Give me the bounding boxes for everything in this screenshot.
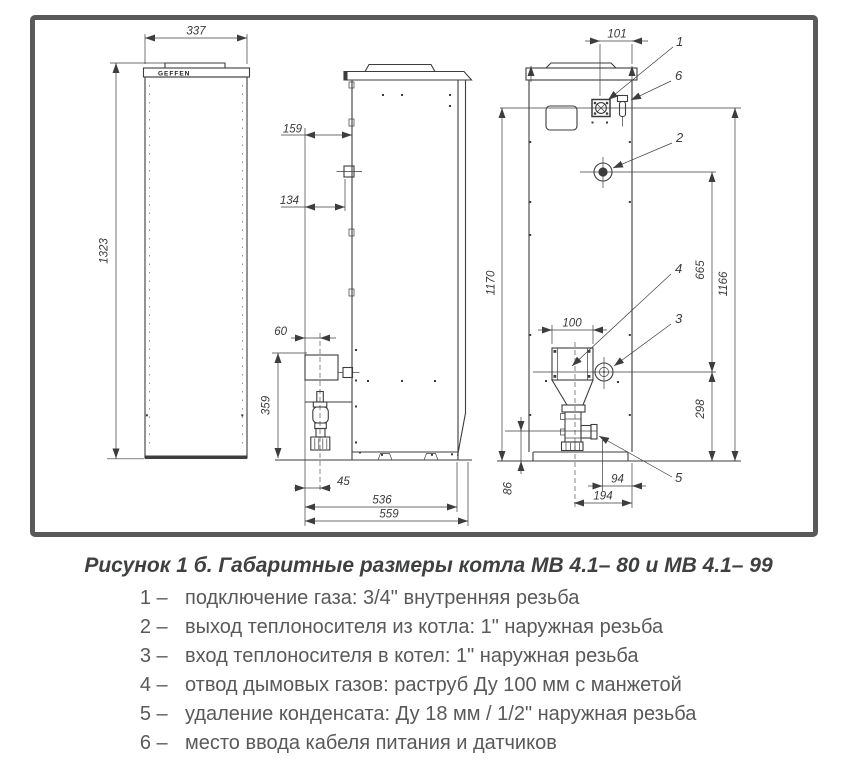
dim-drain-to-back: 94: [588, 474, 646, 487]
dim-front-width: 337: [145, 26, 247, 65]
svg-text:86: 86: [503, 482, 515, 495]
legend-dash: –: [151, 729, 173, 758]
svg-text:665: 665: [695, 260, 707, 280]
svg-text:45: 45: [337, 476, 350, 488]
svg-text:298: 298: [695, 399, 707, 420]
svg-text:559: 559: [379, 509, 399, 521]
svg-text:94: 94: [611, 474, 624, 486]
svg-text:1166: 1166: [718, 271, 730, 296]
legend-text: удаление конденсата: Ду 18 мм / 1/2" нар…: [185, 700, 696, 729]
svg-text:5: 5: [675, 470, 683, 485]
svg-text:359: 359: [261, 395, 273, 415]
technical-drawing: GEFFEN 337 1323: [0, 0, 857, 545]
svg-text:60: 60: [274, 326, 287, 338]
legend-text: подключение газа: 3/4" внутренняя резьба: [185, 584, 579, 613]
legend-dash: –: [151, 700, 173, 729]
legend-num: 5: [137, 700, 151, 729]
dim-flue-width: 100: [538, 318, 607, 345]
svg-text:194: 194: [593, 491, 612, 503]
figure-page: GEFFEN 337 1323: [0, 0, 857, 759]
legend-text: место ввода кабеля питания и датчиков: [185, 729, 557, 758]
legend-num: 1: [137, 584, 151, 613]
svg-text:1323: 1323: [99, 238, 111, 264]
svg-text:134: 134: [280, 195, 299, 207]
side-gas-fitting: [337, 166, 363, 211]
svg-text:1: 1: [676, 34, 683, 49]
svg-text:4: 4: [675, 261, 682, 276]
legend-num: 2: [137, 613, 151, 642]
back-view: 101 100 1170 1: [486, 29, 742, 509]
dim-valve-height: 359: [261, 353, 308, 458]
dim-body-depth: 536: [305, 462, 457, 512]
legend-item-1: 1 – подключение газа: 3/4" внутренняя ре…: [137, 584, 857, 613]
dim-gas-fitting-offset: 134: [280, 195, 345, 207]
figure-title: Рисунок 1 б. Габаритные размеры котла МВ…: [0, 553, 857, 579]
svg-text:6: 6: [675, 68, 683, 83]
legend-dash: –: [151, 671, 173, 700]
dim-drain-height: 86: [503, 417, 522, 495]
svg-text:100: 100: [562, 318, 582, 330]
dim-gas-height: 1170: [486, 108, 503, 461]
dim-front-height: 1323: [99, 63, 166, 459]
dim-inlet-height: 298: [695, 372, 712, 461]
figure-legend: 1 – подключение газа: 3/4" внутренняя ре…: [137, 584, 857, 758]
dim-gas-offset: 101: [585, 29, 648, 65]
legend-dash: –: [151, 642, 173, 671]
inlet-fitting: [595, 357, 613, 389]
callout-2: 2: [613, 130, 684, 168]
legend-num: 3: [137, 642, 151, 671]
legend-item-6: 6 – место ввода кабеля питания и датчико…: [137, 729, 857, 758]
dim-valve-axis-offset: 45: [294, 476, 350, 488]
callout-3: 3: [614, 311, 683, 366]
dim-front-offset: 159: [281, 124, 352, 136]
svg-text:1170: 1170: [486, 270, 498, 295]
callout-1: 1: [608, 34, 683, 100]
dim-outlet-to-inlet: 665: [695, 172, 712, 372]
legend-item-5: 5 – удаление конденсата: Ду 18 мм / 1/2"…: [137, 700, 857, 729]
flue-outlet: [552, 342, 593, 507]
svg-text:159: 159: [283, 124, 303, 136]
legend-text: отвод дымовых газов: раструб Ду 100 мм с…: [185, 671, 682, 700]
brand-label: GEFFEN: [158, 71, 190, 78]
legend-text: вход теплоносителя в котел: 1" наружная …: [185, 642, 639, 671]
legend-item-4: 4 – отвод дымовых газов: раструб Ду 100 …: [137, 671, 857, 700]
dim-gland-height: 1166: [718, 108, 735, 461]
dim-flue-to-back: 194: [574, 463, 632, 508]
svg-text:101: 101: [607, 29, 626, 41]
gas-valve-assembly: [305, 333, 360, 492]
figure-caption-block: Рисунок 1 б. Габаритные размеры котла МВ…: [0, 553, 857, 758]
svg-text:2: 2: [675, 130, 684, 145]
front-view: GEFFEN 337 1323: [99, 26, 250, 460]
callout-6: 6: [631, 68, 683, 100]
legend-item-2: 2 – выход теплоносителя из котла: 1" нар…: [137, 613, 857, 642]
legend-num: 6: [137, 729, 151, 758]
legend-text: выход теплоносителя из котла: 1" наружна…: [185, 613, 663, 642]
svg-text:536: 536: [372, 495, 392, 507]
outlet-fitting: [594, 157, 612, 188]
svg-text:337: 337: [186, 26, 206, 38]
condensate-drain: [561, 405, 603, 491]
cable-gland: [618, 96, 628, 127]
side-view: 159 134 60 359: [261, 65, 473, 527]
svg-text:3: 3: [675, 311, 683, 326]
service-hatch: [546, 106, 577, 130]
legend-item-3: 3 – вход теплоносителя в котел: 1" наруж…: [137, 642, 857, 671]
front-base: [145, 456, 247, 460]
legend-num: 4: [137, 671, 151, 700]
legend-dash: –: [151, 584, 173, 613]
callout-4: 4: [572, 261, 682, 366]
legend-dash: –: [151, 613, 173, 642]
